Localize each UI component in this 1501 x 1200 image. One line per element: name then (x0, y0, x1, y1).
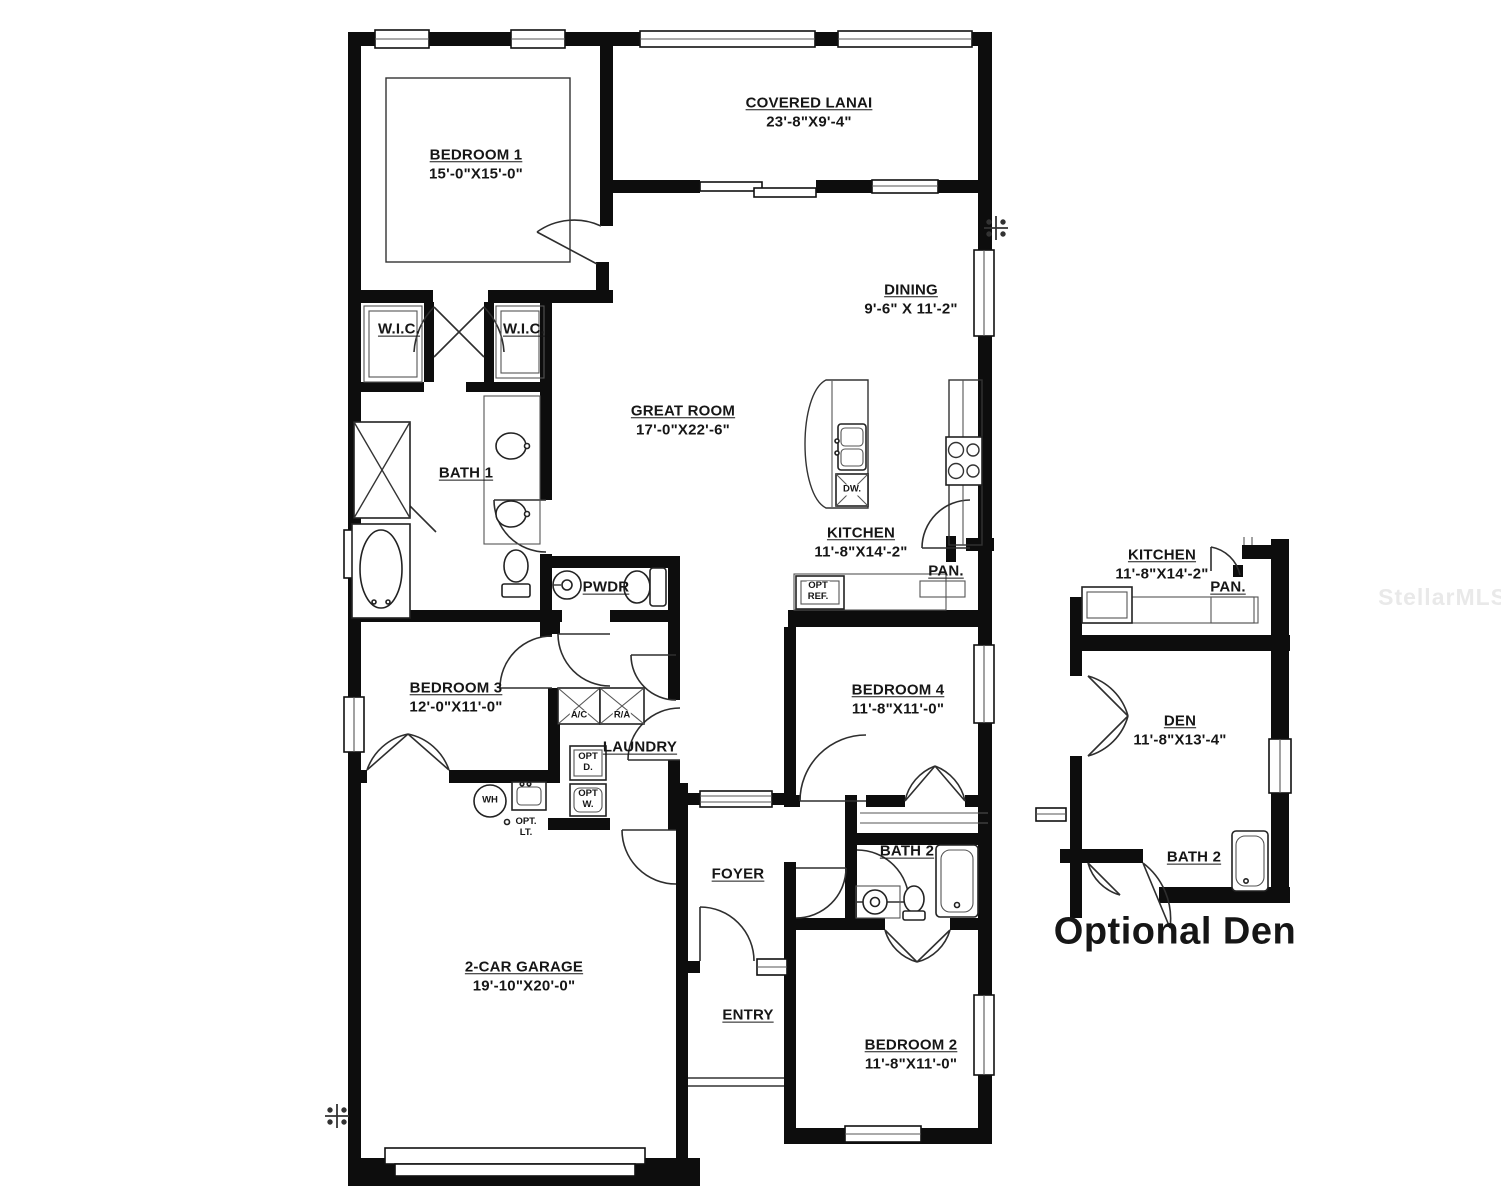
label-inset-bath2: BATH 2 (1167, 849, 1221, 868)
label-great-room: GREAT ROOM 17'-0"X22'-6" (631, 402, 735, 440)
label-wic-right: W.I.C. (503, 321, 545, 340)
label-dining: DINING 9'-6" X 11'-2" (864, 281, 957, 319)
entry-porch-edge (688, 1078, 784, 1086)
kitchen-cabinets-stove (946, 380, 982, 545)
label-dw: DW. (842, 485, 862, 496)
label-foyer: FOYER (712, 866, 765, 885)
label-wh: WH (481, 796, 499, 807)
label-opt-lt: OPT. LT. (514, 817, 537, 839)
garage-door (385, 1148, 645, 1176)
label-ra: R/A (613, 711, 631, 722)
label-opt-ref: OPT REF. (807, 581, 830, 603)
stellar-mls-watermark: StellarMLS (1378, 584, 1501, 611)
label-bath2: BATH 2 (880, 843, 934, 862)
label-opt-w: OPT W. (577, 789, 599, 811)
bedroom1-dims: 15'-0"X15'-0" (429, 165, 523, 184)
label-bedroom2: BEDROOM 2 11'-8"X11'-0" (865, 1036, 958, 1074)
bedroom4-closet-shelf (860, 813, 988, 823)
label-inset-den: DEN 11'-8"X13'-4" (1133, 712, 1226, 750)
label-covered-lanai: COVERED LANAI 23'-8"X9'-4" (746, 94, 873, 132)
wic-shelving (364, 306, 544, 382)
bedroom2-rear-window (845, 1126, 921, 1142)
label-laundry: LAUNDRY (603, 739, 677, 758)
label-entry: ENTRY (722, 1007, 773, 1026)
label-ac: A/C (570, 711, 588, 722)
bedroom1-name: BEDROOM 1 (429, 146, 523, 165)
floor-plan-canvas: BEDROOM 1 15'-0"X15'-0" COVERED LANAI 23… (0, 0, 1501, 1200)
label-bedroom1: BEDROOM 1 15'-0"X15'-0" (429, 146, 523, 184)
crosshair-icon (325, 1104, 349, 1128)
label-opt-d: OPT D. (577, 752, 599, 774)
inset-title: Optional Den (1054, 911, 1296, 954)
label-bedroom4: BEDROOM 4 11'-8"X11'-0" (852, 681, 945, 719)
label-wic-left: W.I.C. (378, 321, 420, 340)
label-bedroom3: BEDROOM 3 12'-0"X11'-0" (409, 679, 502, 717)
label-bath1: BATH 1 (439, 465, 493, 484)
bath1-fixtures (352, 396, 540, 618)
label-pantry: PAN. (928, 563, 964, 582)
label-garage: 2-CAR GARAGE 19'-10"X20'-0" (465, 958, 583, 996)
label-powder: PWDR (583, 579, 630, 598)
inset-tub (1232, 831, 1268, 891)
label-inset-pantry: PAN. (1210, 579, 1246, 598)
label-kitchen: KITCHEN 11'-8"X14'-2" (814, 524, 907, 562)
label-inset-kitchen: KITCHEN 11'-8"X14'-2" (1115, 546, 1208, 584)
